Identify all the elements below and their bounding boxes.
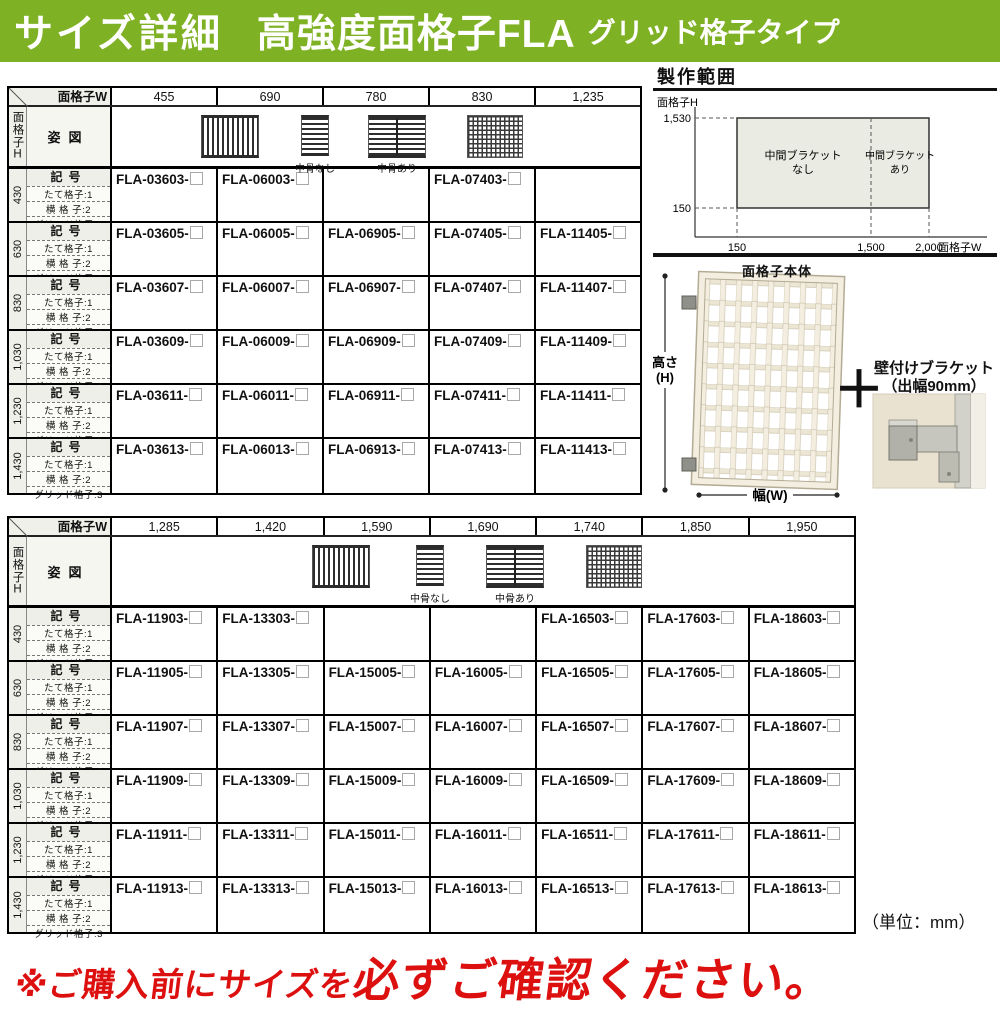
column-width-header: 1,850 bbox=[641, 518, 747, 535]
product-code-cell: FLA-07407- bbox=[428, 277, 534, 329]
y-max-tick: 1,530 bbox=[663, 113, 691, 125]
lattice-type-1-label: たて格子:1 bbox=[27, 841, 110, 856]
product-code-cell: FLA-07409- bbox=[428, 331, 534, 383]
product-code: FLA-17609- bbox=[647, 773, 720, 788]
product-code-cell: FLA-18609- bbox=[748, 770, 854, 822]
table-header-row: 面格子W1,2851,4201,5901,6901,7401,8501,950 bbox=[9, 518, 854, 537]
table-row: 1,230記号たて格子:1横 格 子:2グリッド格子:3FLA-03611-FL… bbox=[9, 385, 640, 439]
product-code: FLA-13311- bbox=[222, 827, 294, 842]
code-placeholder-box bbox=[402, 442, 415, 455]
product-code-cell bbox=[429, 608, 535, 660]
product-code-cell: FLA-16509- bbox=[535, 770, 641, 822]
product-code-cell: FLA-13311- bbox=[216, 824, 322, 876]
lattice-type-1-label: たて格子:1 bbox=[27, 348, 110, 363]
product-code-cell: FLA-17605- bbox=[641, 662, 747, 714]
lattice-type-2-label: 横 格 子:2 bbox=[27, 856, 110, 871]
product-code: FLA-11903- bbox=[116, 611, 188, 626]
range-chart-title: 製作範囲 bbox=[657, 63, 737, 89]
product-code: FLA-11411- bbox=[540, 388, 611, 403]
column-width-header: 455 bbox=[110, 88, 216, 105]
code-row-label: 記号 bbox=[27, 223, 110, 240]
mount-bracket-top bbox=[682, 296, 696, 309]
grille-body bbox=[691, 272, 844, 490]
product-code-cell: FLA-06911- bbox=[322, 385, 428, 437]
code-placeholder-box bbox=[721, 611, 734, 624]
row-height-cell: 630 bbox=[9, 662, 26, 714]
wall-bracket-photo bbox=[873, 394, 985, 488]
row-height-value: 430 bbox=[12, 625, 24, 643]
product-code: FLA-16013- bbox=[435, 881, 508, 896]
code-placeholder-box bbox=[508, 172, 521, 185]
lattice-type-2-label: 横 格 子:2 bbox=[27, 471, 110, 486]
product-code: FLA-13309- bbox=[222, 773, 295, 788]
row-label-block: 記号たて格子:1横 格 子:2グリッド格子:3 bbox=[26, 385, 110, 437]
code-placeholder-box bbox=[721, 881, 734, 894]
row-height-cell: 1,030 bbox=[9, 331, 26, 383]
product-code-cell: FLA-11411- bbox=[534, 385, 640, 437]
product-code-cell bbox=[323, 608, 429, 660]
lattice-type-2-label: 横 格 子:2 bbox=[27, 910, 110, 925]
row-height-value: 1,030 bbox=[12, 782, 24, 810]
product-code-cell: FLA-11907- bbox=[110, 716, 216, 768]
product-code-cell: FLA-07403- bbox=[428, 169, 534, 221]
product-code-cell: FLA-03605- bbox=[110, 223, 216, 275]
product-code-cell: FLA-17607- bbox=[641, 716, 747, 768]
range-area bbox=[737, 118, 929, 208]
grille-figure-hm-icon bbox=[486, 545, 544, 588]
product-code-cell: FLA-17603- bbox=[641, 608, 747, 660]
row-label-block: 記号たて格子:1横 格 子:2グリッド格子:3 bbox=[26, 277, 110, 329]
lattice-type-1-label: たて格子:1 bbox=[27, 625, 110, 640]
product-code-cell: FLA-03603- bbox=[110, 169, 216, 221]
product-code-cell: FLA-18603- bbox=[748, 608, 854, 660]
lattice-type-2-label: 横 格 子:2 bbox=[27, 309, 110, 324]
code-placeholder-box bbox=[295, 388, 308, 401]
product-code-cell: FLA-03607- bbox=[110, 277, 216, 329]
lattice-type-1-label: たて格子:1 bbox=[27, 294, 110, 309]
height-axis-label: 面格子H bbox=[9, 107, 26, 166]
product-code-cell: FLA-15013- bbox=[323, 878, 429, 932]
product-code: FLA-11407- bbox=[540, 280, 612, 295]
height-dim-label: 高さ bbox=[653, 355, 678, 370]
unit-note: （単位：mm） bbox=[862, 908, 975, 933]
code-placeholder-box bbox=[509, 719, 522, 732]
row-height-cell: 430 bbox=[9, 608, 26, 660]
zone-right-line2: あり bbox=[890, 164, 910, 176]
grille-figure-v-icon bbox=[201, 115, 259, 158]
product-code: FLA-07411- bbox=[434, 388, 506, 403]
code-placeholder-box bbox=[190, 442, 203, 455]
product-code: FLA-17611- bbox=[647, 827, 719, 842]
product-code: FLA-17613- bbox=[647, 881, 720, 896]
grille-figure-h-icon bbox=[416, 545, 444, 586]
code-placeholder-box bbox=[721, 719, 734, 732]
lattice-type-2-label: 横 格 子:2 bbox=[27, 363, 110, 378]
lattice-type-3-label: グリッド格子:3 bbox=[27, 925, 110, 940]
row-height-cell: 630 bbox=[9, 223, 26, 275]
product-code: FLA-11409- bbox=[540, 334, 612, 349]
product-code: FLA-07409- bbox=[434, 334, 507, 349]
page-title: サイズ詳細 bbox=[14, 3, 223, 59]
product-type: グリッド格子タイプ bbox=[588, 11, 840, 51]
column-width-header: 1,420 bbox=[216, 518, 322, 535]
row-height-value: 630 bbox=[12, 240, 24, 258]
product-code-cell: FLA-18613- bbox=[748, 878, 854, 932]
code-placeholder-box bbox=[190, 280, 203, 293]
row-height-cell: 1,230 bbox=[9, 824, 26, 876]
column-width-header: 1,235 bbox=[534, 88, 640, 105]
product-code-cell: FLA-13309- bbox=[216, 770, 322, 822]
lattice-type-1-label: たて格子:1 bbox=[27, 402, 110, 417]
code-placeholder-box bbox=[402, 665, 415, 678]
code-placeholder-box bbox=[401, 388, 414, 401]
size-table-small-widths: 面格子W4556907808301,235面格子H姿図中骨なし中骨あり430記号… bbox=[7, 86, 642, 495]
row-height-value: 1,430 bbox=[12, 452, 24, 480]
product-code-cell: FLA-15009- bbox=[323, 770, 429, 822]
product-code-cell: FLA-13307- bbox=[216, 716, 322, 768]
row-height-value: 1,230 bbox=[12, 836, 24, 864]
grille-figure-h-icon bbox=[301, 115, 329, 156]
code-placeholder-box bbox=[721, 773, 734, 786]
product-code: FLA-16511- bbox=[541, 827, 613, 842]
warning-emphasis: 必ずご確認ください。 bbox=[351, 954, 837, 1006]
code-placeholder-box bbox=[827, 719, 840, 732]
product-code: FLA-16005- bbox=[435, 665, 508, 680]
product-code: FLA-16011- bbox=[435, 827, 507, 842]
wall-bracket-label-line1: 壁付けブラケット bbox=[868, 360, 1000, 378]
product-code: FLA-06007- bbox=[222, 280, 295, 295]
product-code: FLA-03607- bbox=[116, 280, 189, 295]
code-placeholder-box bbox=[296, 442, 309, 455]
product-code-cell: FLA-15011- bbox=[323, 824, 429, 876]
row-height-cell: 830 bbox=[9, 277, 26, 329]
code-placeholder-box bbox=[402, 719, 415, 732]
product-code: FLA-16503- bbox=[541, 611, 614, 626]
code-row-label: 記号 bbox=[27, 169, 110, 186]
product-code-cell: FLA-03609- bbox=[110, 331, 216, 383]
figure-row: 面格子H姿図中骨なし中骨あり bbox=[9, 537, 854, 608]
code-placeholder-box bbox=[189, 388, 202, 401]
product-code: FLA-06911- bbox=[328, 388, 400, 403]
product-code: FLA-16009- bbox=[435, 773, 508, 788]
product-code: FLA-03603- bbox=[116, 172, 189, 187]
code-placeholder-box bbox=[402, 773, 415, 786]
code-placeholder-box bbox=[190, 334, 203, 347]
code-placeholder-box bbox=[190, 226, 203, 239]
row-label-block: 記号たて格子:1横 格 子:2グリッド格子:3 bbox=[26, 716, 110, 768]
product-code: FLA-11911- bbox=[116, 827, 187, 842]
divider bbox=[653, 88, 997, 91]
midrib-label: 中骨あり bbox=[495, 590, 535, 605]
lattice-type-2-label: 横 格 子:2 bbox=[27, 201, 110, 216]
midrib-label: 中骨なし bbox=[295, 160, 335, 175]
product-code: FLA-15007- bbox=[329, 719, 402, 734]
product-code-cell: FLA-06909- bbox=[322, 331, 428, 383]
code-placeholder-box bbox=[296, 280, 309, 293]
code-row-label: 記号 bbox=[27, 770, 110, 787]
product-code: FLA-06013- bbox=[222, 442, 295, 457]
product-code: FLA-18607- bbox=[754, 719, 827, 734]
lattice-type-1-label: たて格子:1 bbox=[27, 240, 110, 255]
code-row-label: 記号 bbox=[27, 824, 110, 841]
product-code-cell: FLA-16011- bbox=[429, 824, 535, 876]
code-placeholder-box bbox=[296, 226, 309, 239]
grille-body-label: 面格子本体 bbox=[742, 261, 812, 280]
lattice-type-1-label: たて格子:1 bbox=[27, 679, 110, 694]
lattice-type-1-label: たて格子:1 bbox=[27, 186, 110, 201]
dim-endpoint bbox=[696, 492, 701, 497]
code-placeholder-box bbox=[827, 665, 840, 678]
code-placeholder-box bbox=[615, 773, 628, 786]
product-code: FLA-06913- bbox=[328, 442, 401, 457]
code-placeholder-box bbox=[508, 442, 521, 455]
table-row: 1,030記号たて格子:1横 格 子:2グリッド格子:3FLA-03609-FL… bbox=[9, 331, 640, 385]
zone-right-line1: 中間ブラケット bbox=[865, 149, 935, 162]
mount-bracket-bottom bbox=[682, 458, 696, 471]
code-placeholder-box bbox=[190, 172, 203, 185]
row-label-block: 記号たて格子:1横 格 子:2グリッド格子:3 bbox=[26, 878, 110, 932]
product-code: FLA-16007- bbox=[435, 719, 508, 734]
product-code-cell: FLA-06907- bbox=[322, 277, 428, 329]
product-code: FLA-13313- bbox=[222, 881, 295, 896]
title-band: サイズ詳細 高強度面格子FLA グリッド格子タイプ bbox=[0, 0, 1000, 62]
code-row-label: 記号 bbox=[27, 385, 110, 402]
figure-row-label: 姿図 bbox=[26, 107, 110, 166]
product-code-cell bbox=[534, 169, 640, 221]
table-header-row: 面格子W4556907808301,235 bbox=[9, 88, 640, 107]
table-row: 430記号たて格子:1横 格 子:2グリッド格子:3FLA-11903-FLA-… bbox=[9, 608, 854, 662]
wall-bracket-label: 壁付けブラケット （出幅90mm） bbox=[868, 360, 1000, 396]
product-code-cell: FLA-16503- bbox=[535, 608, 641, 660]
lattice-type-1-label: たて格子:1 bbox=[27, 456, 110, 471]
code-placeholder-box bbox=[189, 719, 202, 732]
row-height-cell: 1,230 bbox=[9, 385, 26, 437]
product-code-cell: FLA-11913- bbox=[110, 878, 216, 932]
code-placeholder-box bbox=[613, 280, 626, 293]
lattice-type-1-label: たて格子:1 bbox=[27, 895, 110, 910]
figure-area: 中骨なし中骨あり bbox=[110, 537, 854, 605]
product-code-cell: FLA-16009- bbox=[429, 770, 535, 822]
table-row: 830記号たて格子:1横 格 子:2グリッド格子:3FLA-11907-FLA-… bbox=[9, 716, 854, 770]
code-placeholder-box bbox=[507, 388, 520, 401]
product-code-cell: FLA-03613- bbox=[110, 439, 216, 493]
dim-endpoint bbox=[662, 487, 667, 492]
code-placeholder-box bbox=[508, 334, 521, 347]
row-label-block: 記号たて格子:1横 格 子:2グリッド格子:3 bbox=[26, 824, 110, 876]
product-code: FLA-18605- bbox=[754, 665, 827, 680]
product-code-cell: FLA-16513- bbox=[535, 878, 641, 932]
code-placeholder-box bbox=[509, 773, 522, 786]
code-row-label: 記号 bbox=[27, 878, 110, 895]
product-code: FLA-06907- bbox=[328, 280, 401, 295]
product-code: FLA-06005- bbox=[222, 226, 295, 241]
product-code-cell: FLA-06009- bbox=[216, 331, 322, 383]
midrib-label: 中骨なし bbox=[410, 590, 450, 605]
lattice-type-2-label: 横 格 子:2 bbox=[27, 802, 110, 817]
corner-diagonal-line bbox=[9, 518, 110, 537]
x-axis-label: 面格子W bbox=[938, 240, 982, 254]
product-code: FLA-06011- bbox=[222, 388, 294, 403]
product-code: FLA-13303- bbox=[222, 611, 295, 626]
code-placeholder-box bbox=[402, 226, 415, 239]
product-code-cell: FLA-17609- bbox=[641, 770, 747, 822]
product-code-cell: FLA-11407- bbox=[534, 277, 640, 329]
product-code: FLA-16505- bbox=[541, 665, 614, 680]
product-code-cell: FLA-18607- bbox=[748, 716, 854, 768]
row-label-block: 記号たて格子:1横 格 子:2グリッド格子:3 bbox=[26, 223, 110, 275]
code-placeholder-box bbox=[189, 611, 202, 624]
row-height-value: 430 bbox=[12, 186, 24, 204]
column-width-header: 1,285 bbox=[110, 518, 216, 535]
product-code-cell: FLA-15007- bbox=[323, 716, 429, 768]
product-code: FLA-06905- bbox=[328, 226, 401, 241]
product-code: FLA-11913- bbox=[116, 881, 188, 896]
column-width-header: 1,590 bbox=[323, 518, 429, 535]
grille-figure-g-icon bbox=[467, 115, 523, 158]
product-code-cell: FLA-17611- bbox=[641, 824, 747, 876]
table-row: 430記号たて格子:1横 格 子:2グリッド格子:3FLA-03603-FLA-… bbox=[9, 169, 640, 223]
code-placeholder-box bbox=[615, 719, 628, 732]
code-placeholder-box bbox=[613, 334, 626, 347]
code-placeholder-box bbox=[189, 665, 202, 678]
code-placeholder-box bbox=[508, 827, 521, 840]
product-code: FLA-18603- bbox=[754, 611, 827, 626]
product-code: FLA-06909- bbox=[328, 334, 401, 349]
code-placeholder-box bbox=[189, 773, 202, 786]
product-code-cell: FLA-17613- bbox=[641, 878, 747, 932]
product-code-cell: FLA-11405- bbox=[534, 223, 640, 275]
product-code: FLA-07407- bbox=[434, 280, 507, 295]
code-placeholder-box bbox=[188, 827, 201, 840]
product-name: 高強度面格子FLA bbox=[257, 3, 576, 59]
code-row-label: 記号 bbox=[27, 439, 110, 456]
code-placeholder-box bbox=[827, 881, 840, 894]
row-height-cell: 1,430 bbox=[9, 878, 26, 932]
product-code-cell: FLA-03611- bbox=[110, 385, 216, 437]
code-placeholder-box bbox=[827, 827, 840, 840]
table-corner-cell: 面格子W bbox=[9, 88, 110, 105]
product-code-cell: FLA-11413- bbox=[534, 439, 640, 493]
purchase-warning: ※ご購入前にサイズを必ずご確認ください。 bbox=[12, 944, 838, 1010]
code-placeholder-box bbox=[508, 226, 521, 239]
code-placeholder-box bbox=[614, 827, 627, 840]
product-code: FLA-16513- bbox=[541, 881, 614, 896]
row-label-block: 記号たて格子:1横 格 子:2グリッド格子:3 bbox=[26, 439, 110, 493]
row-label-block: 記号たて格子:1横 格 子:2グリッド格子:3 bbox=[26, 169, 110, 221]
figure-row: 面格子H姿図中骨なし中骨あり bbox=[9, 107, 640, 169]
lattice-type-3-label: グリッド格子:3 bbox=[27, 486, 110, 501]
product-code: FLA-16507- bbox=[541, 719, 614, 734]
grille-figure-g-icon bbox=[586, 545, 642, 588]
code-placeholder-box bbox=[827, 773, 840, 786]
table-row: 630記号たて格子:1横 格 子:2グリッド格子:3FLA-11905-FLA-… bbox=[9, 662, 854, 716]
y-min-tick: 150 bbox=[673, 203, 691, 215]
product-code: FLA-15011- bbox=[329, 827, 401, 842]
product-code-cell: FLA-06905- bbox=[322, 223, 428, 275]
lattice-type-2-label: 横 格 子:2 bbox=[27, 748, 110, 763]
product-code: FLA-07413- bbox=[434, 442, 507, 457]
product-code-cell: FLA-16511- bbox=[535, 824, 641, 876]
midrib-label: 中骨あり bbox=[377, 160, 417, 175]
product-code-cell: FLA-16005- bbox=[429, 662, 535, 714]
code-placeholder-box bbox=[720, 827, 733, 840]
code-placeholder-box bbox=[613, 442, 626, 455]
code-placeholder-box bbox=[612, 388, 625, 401]
code-placeholder-box bbox=[509, 881, 522, 894]
product-code: FLA-13307- bbox=[222, 719, 295, 734]
code-placeholder-box bbox=[402, 334, 415, 347]
lattice-type-2-label: 横 格 子:2 bbox=[27, 640, 110, 655]
zone-left-line1: 中間ブラケット bbox=[765, 148, 842, 162]
row-height-value: 1,430 bbox=[12, 891, 24, 919]
code-placeholder-box bbox=[296, 611, 309, 624]
product-code-cell: FLA-18611- bbox=[748, 824, 854, 876]
product-code: FLA-11413- bbox=[540, 442, 612, 457]
product-code-cell: FLA-11909- bbox=[110, 770, 216, 822]
row-height-value: 1,030 bbox=[12, 343, 24, 371]
production-range-diagram: 面格子H 1,530 150 150 1,500 2,000 面格子W 中間ブラ… bbox=[653, 93, 998, 255]
product-code: FLA-03613- bbox=[116, 442, 189, 457]
product-code-cell: FLA-15005- bbox=[323, 662, 429, 714]
row-label-block: 記号たて格子:1横 格 子:2グリッド格子:3 bbox=[26, 608, 110, 660]
product-code-cell: FLA-16507- bbox=[535, 716, 641, 768]
row-height-value: 830 bbox=[12, 294, 24, 312]
product-code-cell: FLA-07405- bbox=[428, 223, 534, 275]
code-placeholder-box bbox=[721, 665, 734, 678]
product-code-cell: FLA-11409- bbox=[534, 331, 640, 383]
row-height-value: 1,230 bbox=[12, 397, 24, 425]
product-code-cell bbox=[322, 169, 428, 221]
code-placeholder-box bbox=[402, 280, 415, 293]
product-code: FLA-03609- bbox=[116, 334, 189, 349]
table-row: 1,430記号たて格子:1横 格 子:2グリッド格子:3FLA-03613-FL… bbox=[9, 439, 640, 493]
product-code: FLA-06003- bbox=[222, 172, 295, 187]
row-label-block: 記号たて格子:1横 格 子:2グリッド格子:3 bbox=[26, 770, 110, 822]
warning-prefix: ※ご購入前にサイズを bbox=[13, 966, 356, 1003]
product-code: FLA-18613- bbox=[754, 881, 827, 896]
dim-endpoint bbox=[834, 492, 839, 497]
code-placeholder-box bbox=[402, 827, 415, 840]
code-row-label: 記号 bbox=[27, 716, 110, 733]
row-height-value: 630 bbox=[12, 679, 24, 697]
table-row: 1,030記号たて格子:1横 格 子:2グリッド格子:3FLA-11909-FL… bbox=[9, 770, 854, 824]
divider bbox=[653, 253, 997, 257]
table-row: 1,230記号たて格子:1横 格 子:2グリッド格子:3FLA-11911-FL… bbox=[9, 824, 854, 878]
product-code: FLA-03605- bbox=[116, 226, 189, 241]
product-code-cell: FLA-11903- bbox=[110, 608, 216, 660]
product-code-cell: FLA-06011- bbox=[216, 385, 322, 437]
code-row-label: 記号 bbox=[27, 662, 110, 679]
lattice-type-2-label: 横 格 子:2 bbox=[27, 255, 110, 270]
product-code-cell: FLA-06007- bbox=[216, 277, 322, 329]
product-code: FLA-13305- bbox=[222, 665, 295, 680]
code-row-label: 記号 bbox=[27, 277, 110, 294]
row-height-cell: 1,030 bbox=[9, 770, 26, 822]
code-placeholder-box bbox=[296, 719, 309, 732]
code-placeholder-box bbox=[613, 226, 626, 239]
column-width-header: 780 bbox=[322, 88, 428, 105]
product-code: FLA-15009- bbox=[329, 773, 402, 788]
table-row: 630記号たて格子:1横 格 子:2グリッド格子:3FLA-03605-FLA-… bbox=[9, 223, 640, 277]
height-axis-label: 面格子H bbox=[9, 537, 26, 605]
row-height-cell: 1,430 bbox=[9, 439, 26, 493]
product-code-cell: FLA-07413- bbox=[428, 439, 534, 493]
product-code: FLA-17605- bbox=[647, 665, 720, 680]
product-code-cell: FLA-11911- bbox=[110, 824, 216, 876]
grille-figure-v-icon bbox=[312, 545, 370, 588]
lattice-type-2-label: 横 格 子:2 bbox=[27, 417, 110, 432]
column-width-header: 1,740 bbox=[535, 518, 641, 535]
